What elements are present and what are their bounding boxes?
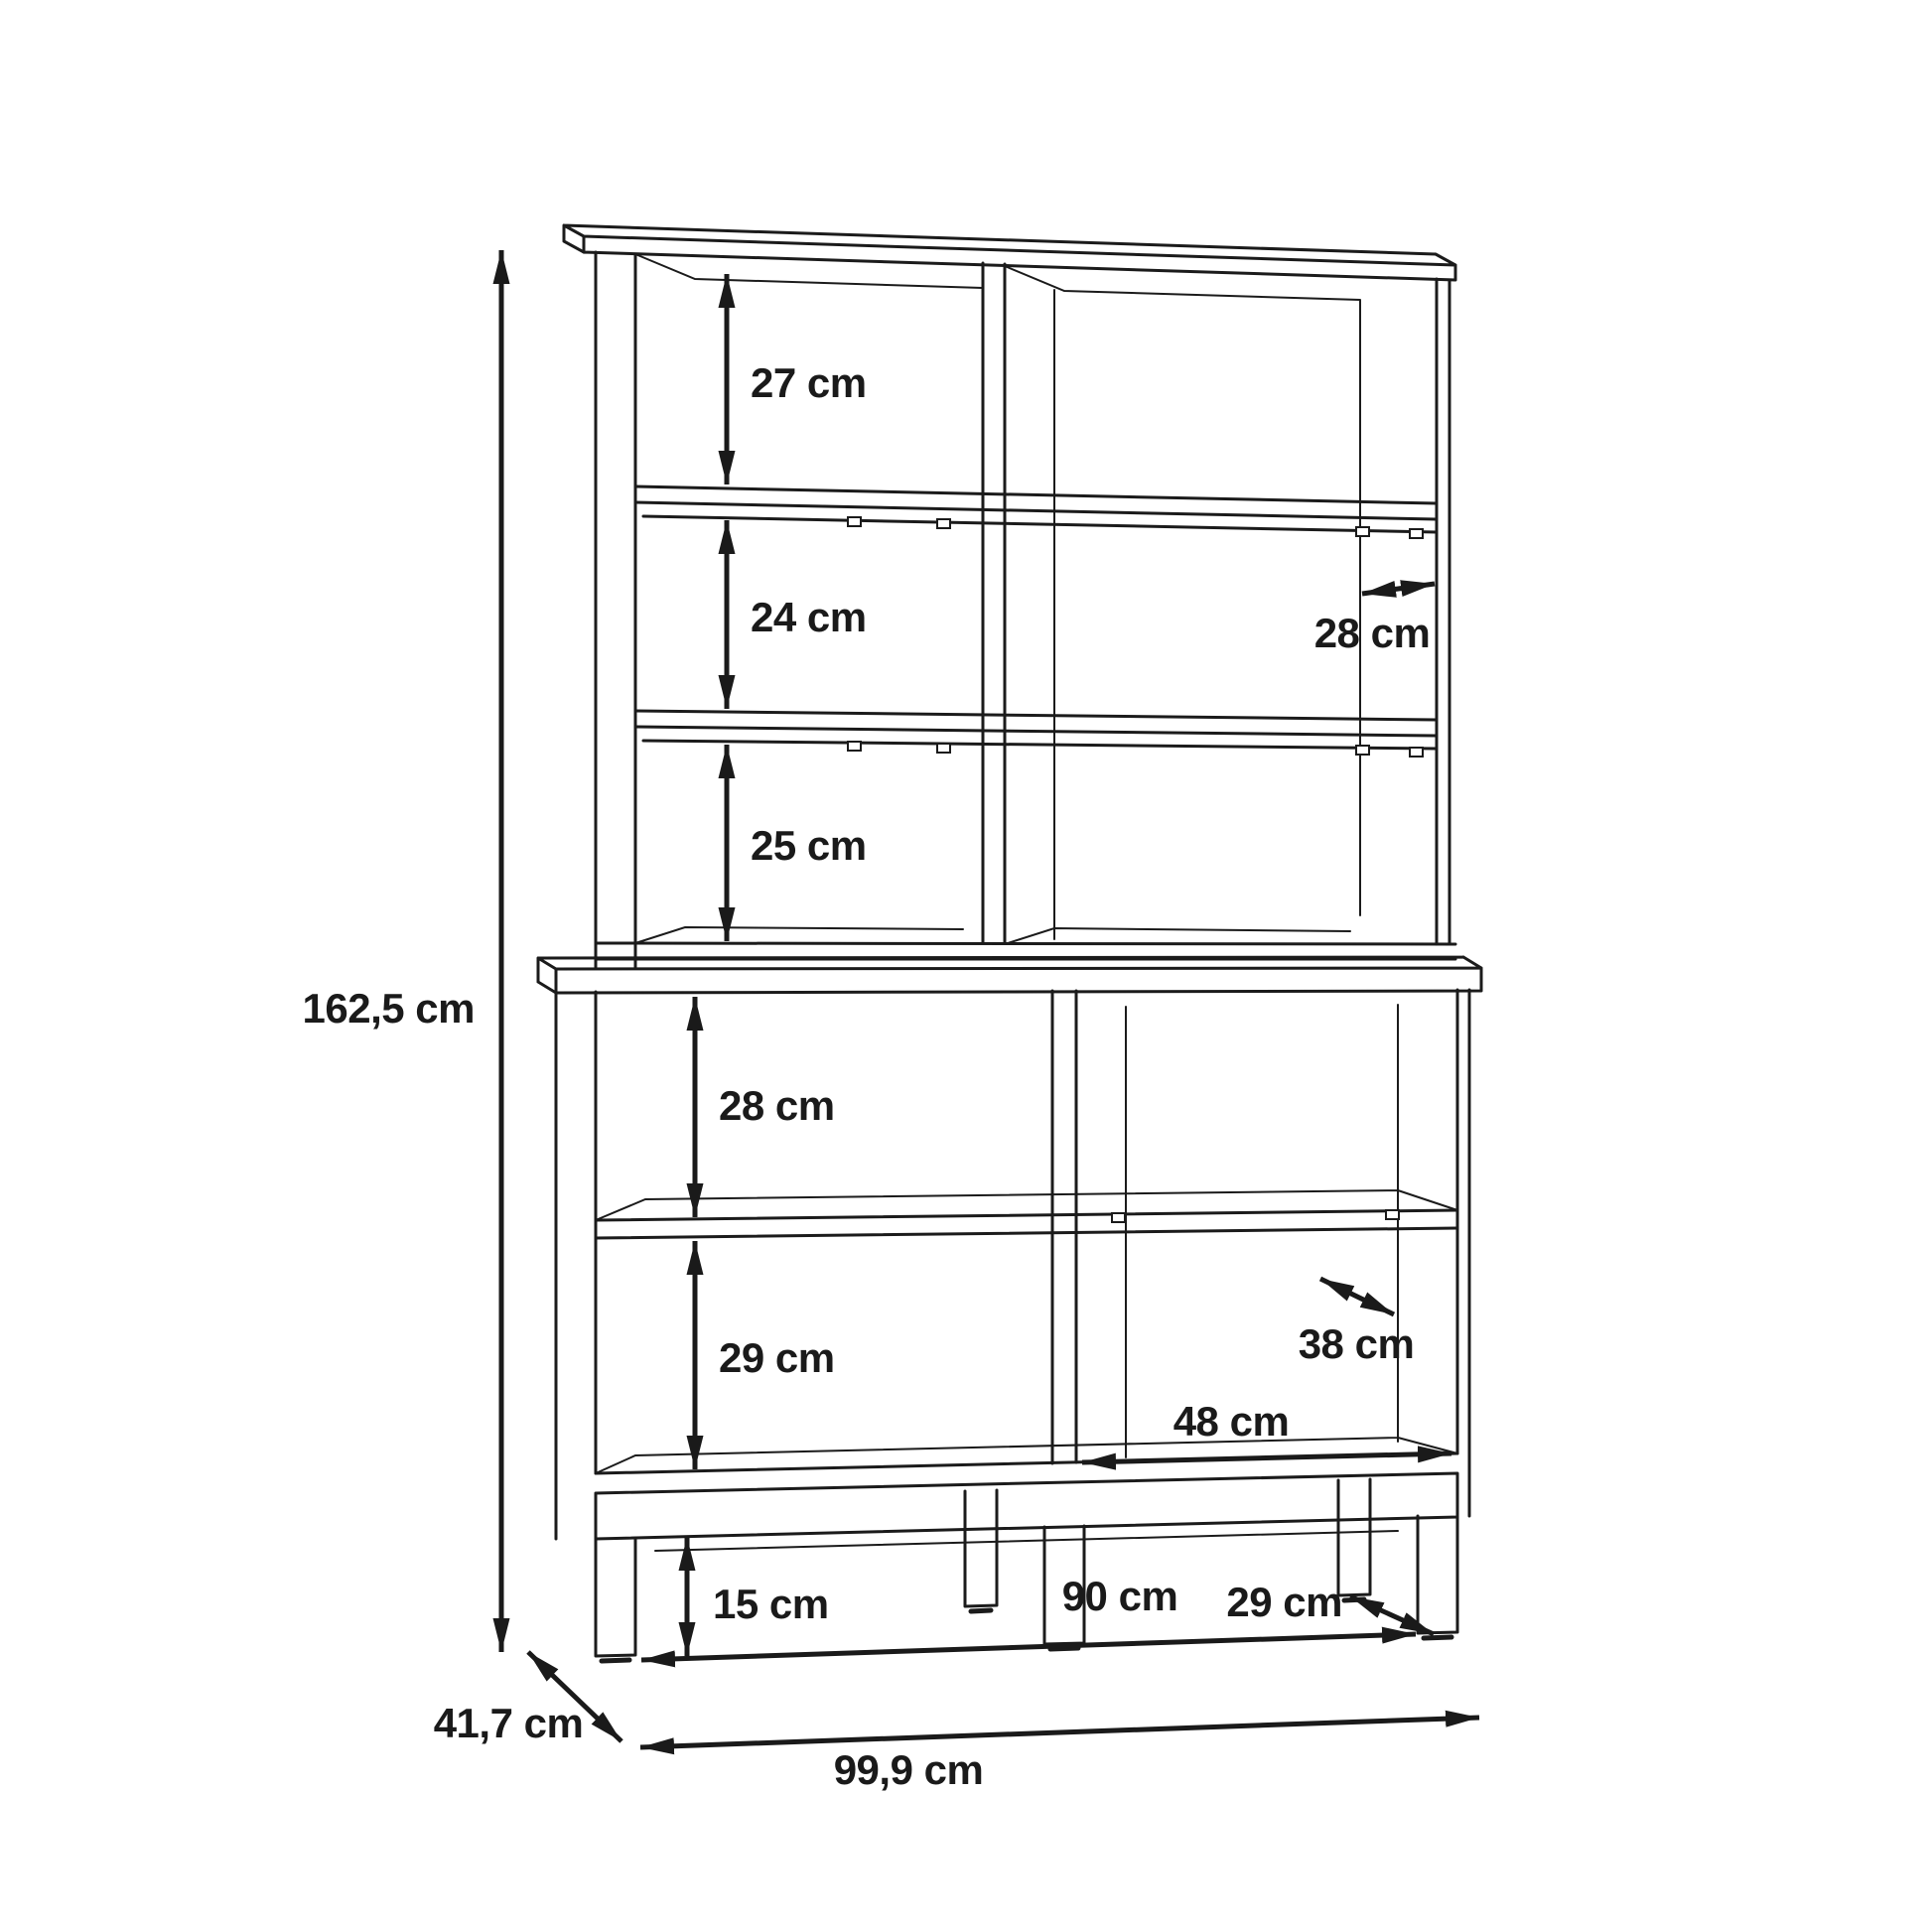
upper-top-slab xyxy=(564,225,1455,280)
dim-label-overall-depth: 41,7 cm xyxy=(434,1700,584,1746)
lower-shelf xyxy=(596,1210,1457,1238)
dim-arrow-upper-shelf-depth xyxy=(1362,584,1435,594)
dim-label-lower-compartment-top: 28 cm xyxy=(719,1082,835,1129)
dim-arrow-lower-shelf-depth xyxy=(1320,1279,1394,1314)
dimension-arrows xyxy=(501,250,1479,1747)
dim-arrow-base-leg-depth xyxy=(1350,1596,1434,1634)
dim-label-lower-compartment-bottom: 29 cm xyxy=(719,1334,835,1381)
dim-label-base-inner-width: 90 cm xyxy=(1062,1573,1178,1619)
lower-top-lip xyxy=(538,957,1481,993)
upper-floor-depth-lines xyxy=(635,927,1350,944)
dim-arrow-base-inner-width xyxy=(641,1634,1416,1660)
furniture-dimension-diagram: 162,5 cm 27 cm 24 cm 25 cm 28 cm 28 cm 2… xyxy=(0,0,1932,1932)
upper-shelf-2 xyxy=(635,711,1437,749)
cabinet-legs xyxy=(596,1479,1457,1661)
upper-shelf-1 xyxy=(635,486,1437,532)
diagram-canvas: 162,5 cm 27 cm 24 cm 25 cm 28 cm 28 cm 2… xyxy=(0,0,1932,1932)
dimension-labels: 162,5 cm 27 cm 24 cm 25 cm 28 cm 28 cm 2… xyxy=(303,359,1431,1793)
cabinet-upper-unit xyxy=(564,225,1455,967)
dim-label-upper-compartment-bottom: 25 cm xyxy=(751,822,867,869)
dim-label-upper-shelf-depth: 28 cm xyxy=(1314,610,1431,656)
dim-label-base-leg-depth: 29 cm xyxy=(1226,1579,1342,1625)
dim-arrow-overall-width xyxy=(640,1718,1479,1747)
front-left-leg xyxy=(596,1538,635,1656)
cabinet-lower-unit xyxy=(538,957,1481,1551)
dim-label-base-clearance: 15 cm xyxy=(713,1581,829,1627)
upper-interior-depth-lines xyxy=(635,254,1360,939)
dim-label-overall-width: 99,9 cm xyxy=(834,1746,984,1793)
dim-arrow-lower-right-width xyxy=(1082,1453,1451,1462)
front-right-leg xyxy=(1418,1515,1457,1633)
dim-label-upper-compartment-top: 27 cm xyxy=(751,359,867,406)
back-right-leg xyxy=(1338,1479,1370,1595)
dim-label-overall-height: 162,5 cm xyxy=(303,985,475,1032)
dim-label-lower-shelf-depth: 38 cm xyxy=(1299,1320,1415,1367)
back-middle-leg xyxy=(965,1490,997,1606)
lower-floor xyxy=(596,1453,1457,1539)
dim-label-upper-compartment-middle: 24 cm xyxy=(751,594,867,640)
dim-label-lower-right-width: 48 cm xyxy=(1173,1398,1290,1445)
